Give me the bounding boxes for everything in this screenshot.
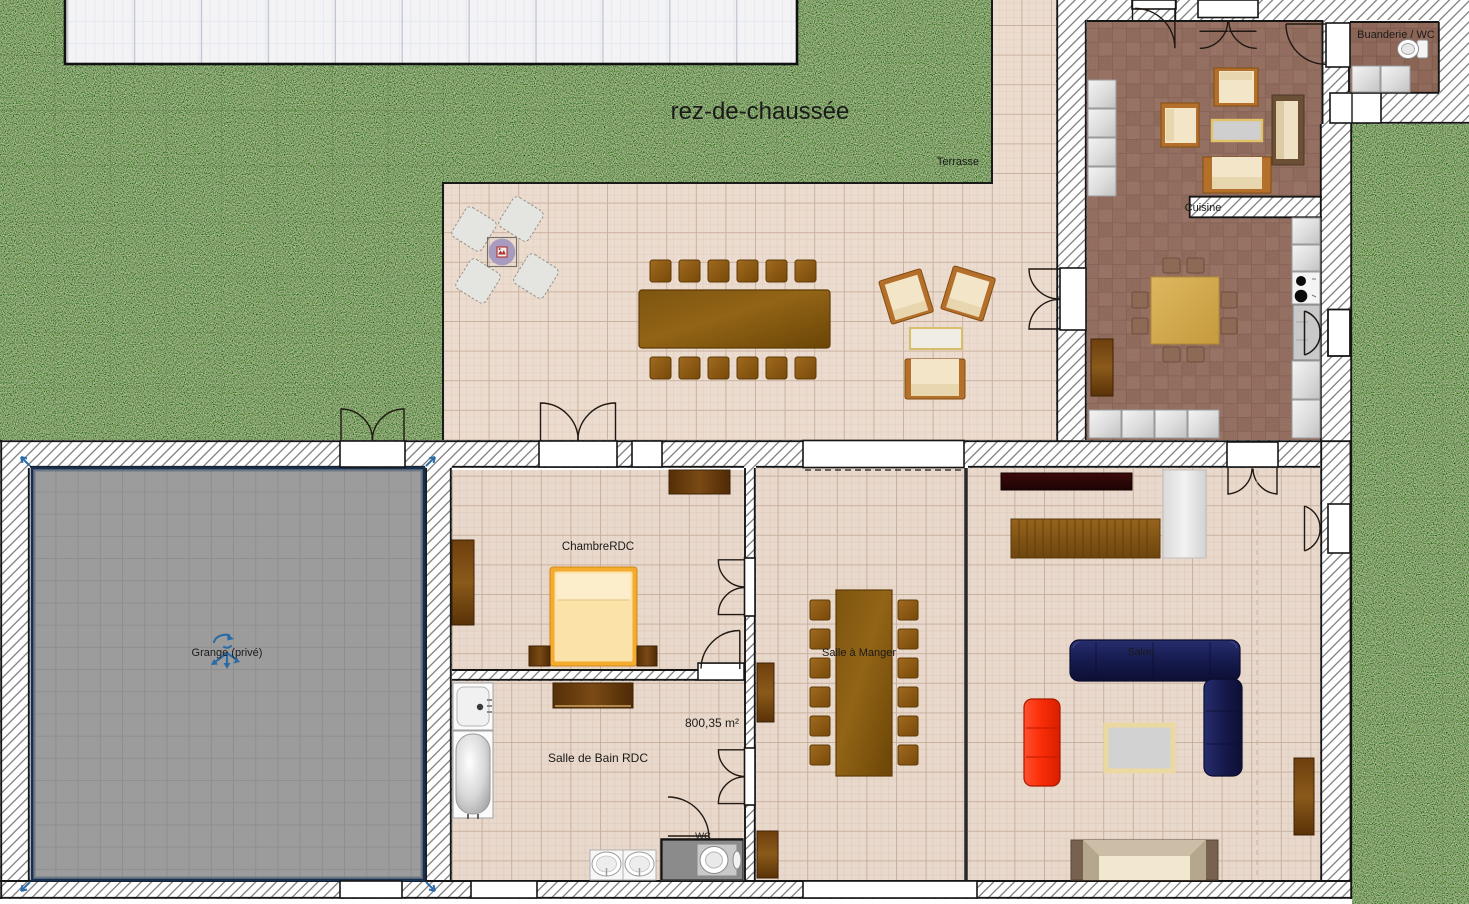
svg-text:Buanderie / WC: Buanderie / WC bbox=[1357, 29, 1435, 41]
svg-text:Cuisine: Cuisine bbox=[1185, 202, 1222, 214]
svg-text:ChambreRDC: ChambreRDC bbox=[562, 541, 634, 553]
svg-text:Salle de Bain RDC: Salle de Bain RDC bbox=[548, 751, 648, 765]
svg-text:rez-de-chaussée: rez-de-chaussée bbox=[671, 98, 850, 125]
svg-text:Salle à Manger: Salle à Manger bbox=[822, 647, 896, 659]
svg-text:Grange (privé): Grange (privé) bbox=[192, 647, 263, 659]
svg-text:WC: WC bbox=[695, 831, 711, 842]
svg-text:Salon: Salon bbox=[1128, 646, 1155, 658]
svg-text:800,35 m²: 800,35 m² bbox=[685, 716, 739, 730]
svg-text:Terrasse: Terrasse bbox=[937, 156, 979, 168]
